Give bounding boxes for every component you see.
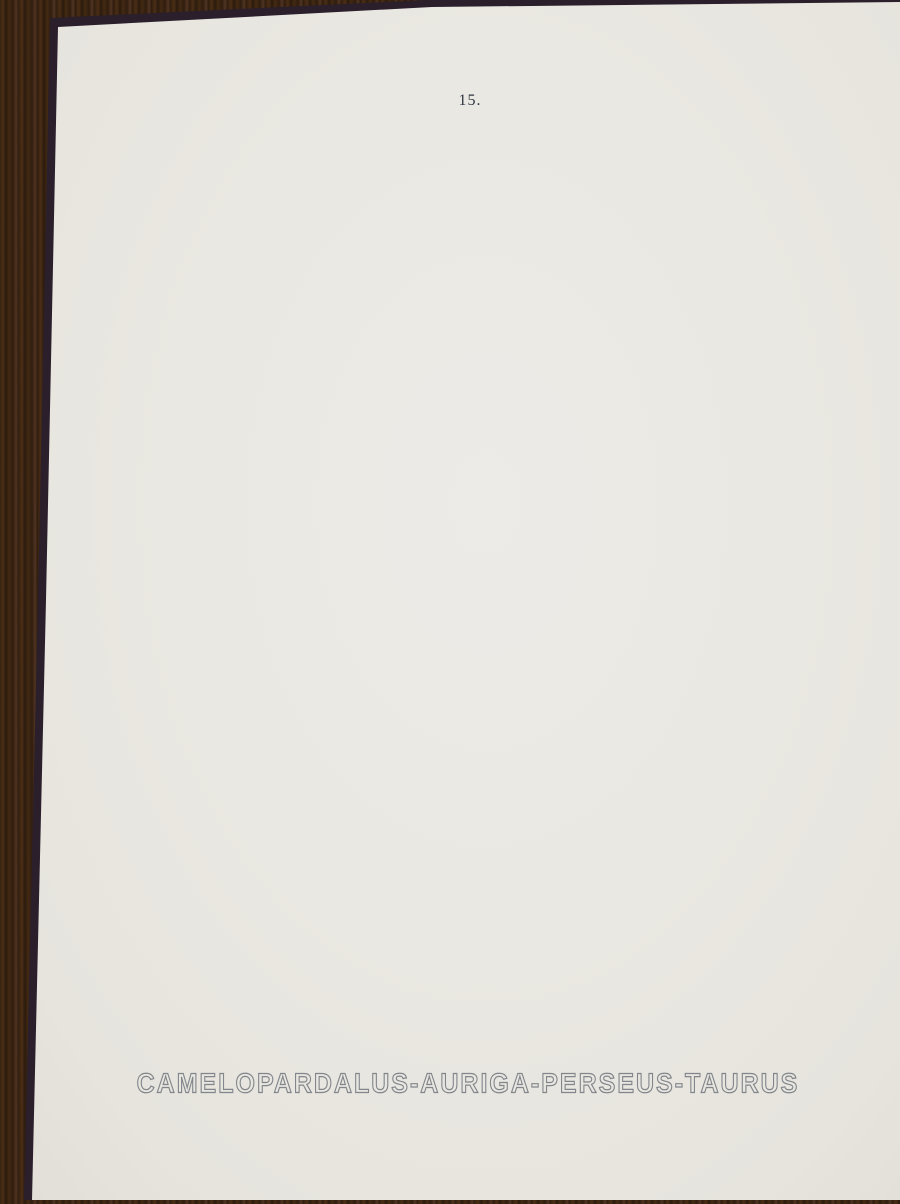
page-number: 15.: [440, 92, 500, 110]
constellation-title: CAMELOPARDALUS-AURIGA-PERSEUS-TAURUS: [137, 1068, 800, 1100]
photo-of-atlas-page: 15. 6ʰ6ʰ5ʰ40ᵐ5ʰ40ᵐ5ʰ20ᵐ5ʰ20ᵐ5ʰ5ʰ4ʰ40ᵐ4ʰ4…: [0, 0, 900, 1200]
atlas-paper-sheet: [0, 0, 900, 1200]
